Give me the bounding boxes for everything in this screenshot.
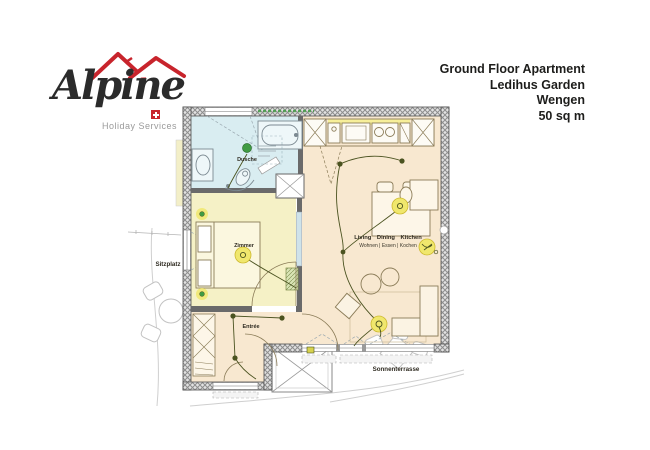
sitzplatz-furniture [140,280,183,343]
kitchen-counter [304,119,434,146]
light-well [272,347,332,392]
living-label: Living Dining Kitchen [354,235,422,241]
dining-light [392,198,408,214]
bedroom-light [235,247,251,263]
sitzplatz-label: Sitzplatz [155,261,180,268]
bathroom-label: Dusche [237,157,257,163]
bathtub [258,121,302,149]
washbasin [192,149,213,181]
page: Alpine Holiday Services Ground Floor Apa… [0,0,650,450]
entry-label: Entrée [242,324,259,330]
floor-plan: Dusche Zimmer Living Dining Kitchen Wohn… [0,0,650,450]
sliding-door [297,212,302,266]
shower-light [243,144,252,153]
exterior-strip [176,140,183,206]
property-line [128,230,181,236]
bedroom-label: Zimmer [234,243,255,249]
wall-outlet [307,347,314,353]
sonnenterrasse-label: Sonnenterrasse [373,366,420,373]
living-sublabel: Wohnen | Essen | Kochen [359,243,417,249]
entry-wardrobe [193,314,215,376]
wall-knob [440,226,448,234]
